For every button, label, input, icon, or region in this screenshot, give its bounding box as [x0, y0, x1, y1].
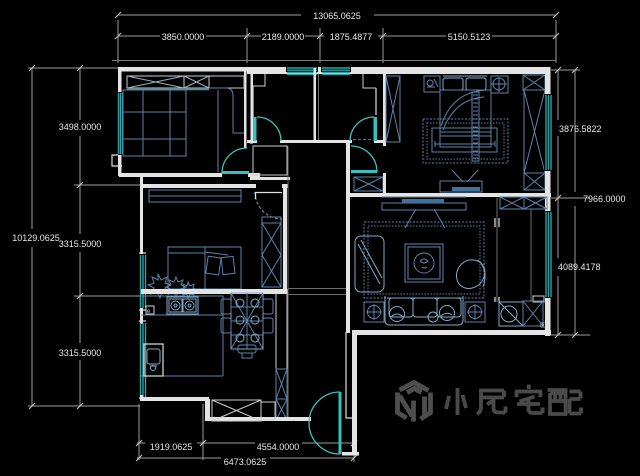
svg-text:5150.5123: 5150.5123	[448, 32, 491, 42]
svg-text:13065.0625: 13065.0625	[313, 11, 361, 21]
svg-text:1919.0625: 1919.0625	[150, 442, 193, 452]
svg-text:1875.4877: 1875.4877	[330, 32, 373, 42]
svg-text:2189.0000: 2189.0000	[262, 32, 305, 42]
svg-text:4554.0000: 4554.0000	[257, 442, 300, 452]
svg-text:3876.5822: 3876.5822	[559, 124, 602, 134]
svg-text:4089.4178: 4089.4178	[558, 262, 601, 272]
svg-text:3498.0000: 3498.0000	[59, 122, 102, 132]
svg-text:3850.0000: 3850.0000	[162, 32, 205, 42]
svg-text:3315.5000: 3315.5000	[59, 239, 102, 249]
svg-text:6473.0625: 6473.0625	[224, 457, 267, 467]
svg-text:10129.0625: 10129.0625	[12, 233, 60, 243]
svg-text:®: ®	[540, 321, 546, 330]
svg-text:7966.0000: 7966.0000	[583, 194, 626, 204]
svg-text:3315.5000: 3315.5000	[59, 348, 102, 358]
